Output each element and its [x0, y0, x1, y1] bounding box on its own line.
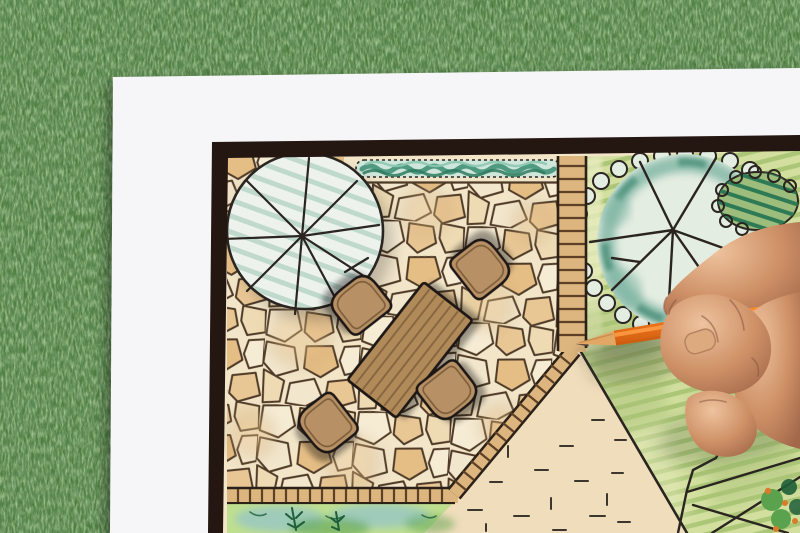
groundcover-bed — [227, 503, 455, 533]
brick-edging — [227, 488, 458, 503]
photo-canvas — [0, 0, 800, 533]
garden-plan-photo — [0, 0, 800, 533]
brick-path — [558, 156, 586, 352]
